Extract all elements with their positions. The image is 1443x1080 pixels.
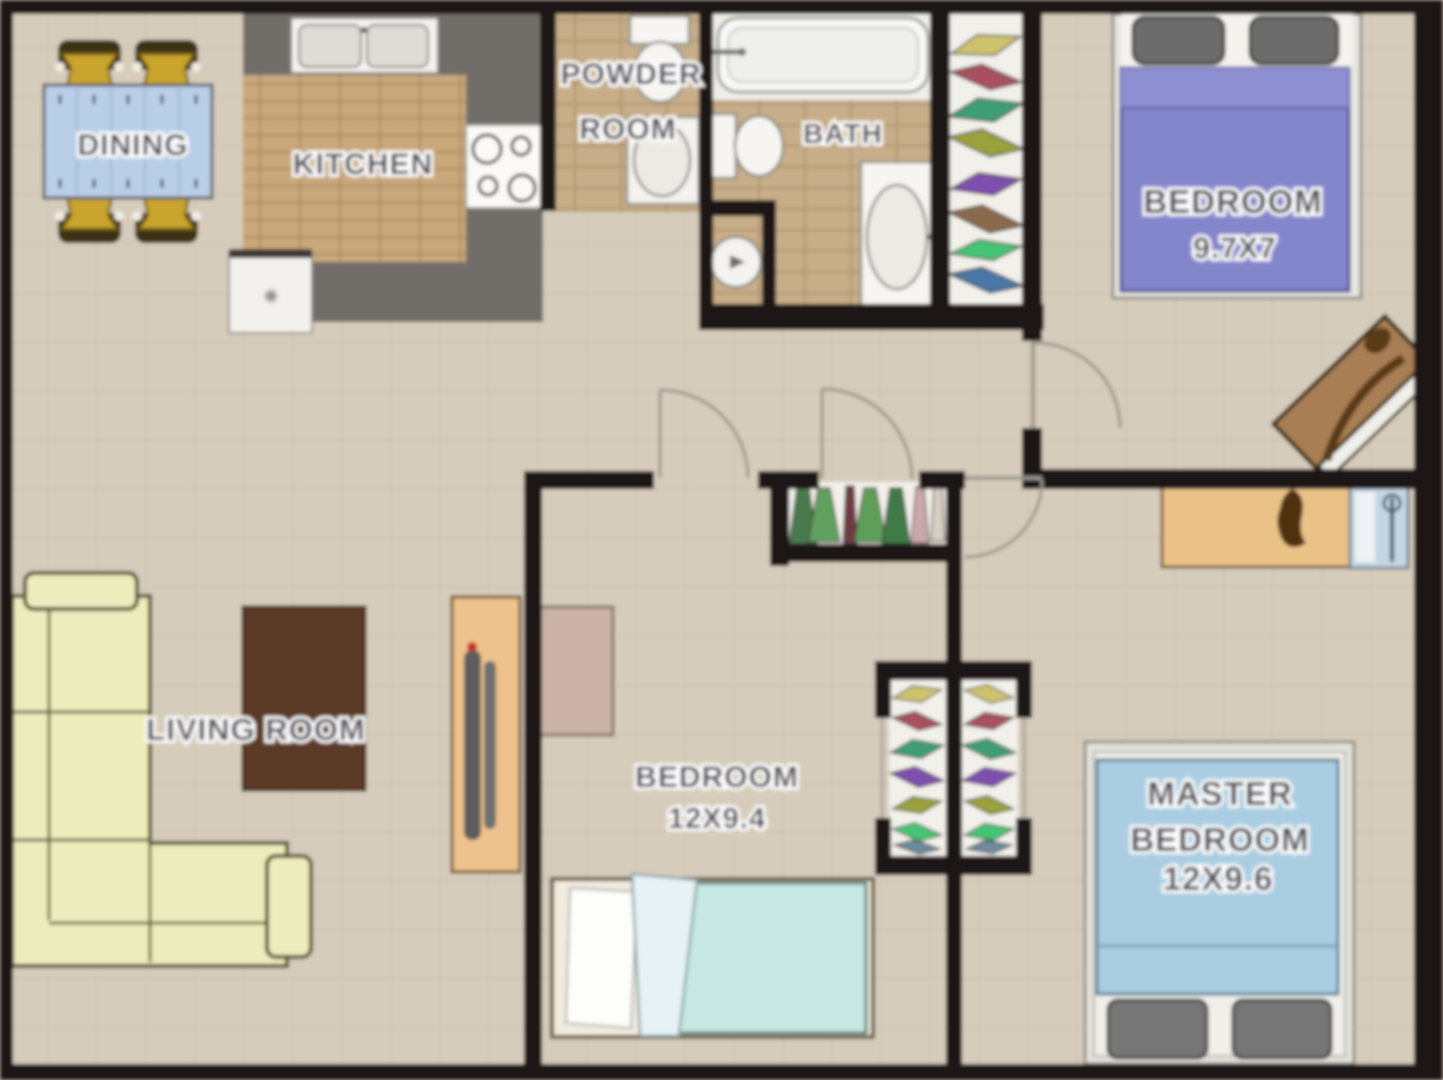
svg-text:MASTER: MASTER — [1147, 775, 1292, 812]
svg-text:12X9.4: 12X9.4 — [668, 803, 766, 835]
svg-text:BEDROOM: BEDROOM — [1130, 821, 1309, 858]
svg-text:DINING: DINING — [78, 129, 189, 162]
svg-text:ROOM: ROOM — [579, 113, 676, 146]
svg-text:LIVING ROOM: LIVING ROOM — [146, 712, 365, 747]
svg-text:BEDROOM: BEDROOM — [1143, 183, 1322, 220]
svg-text:12X9.6: 12X9.6 — [1163, 860, 1274, 897]
svg-text:BEDROOM: BEDROOM — [635, 761, 799, 794]
svg-text:KITCHEN: KITCHEN — [293, 148, 433, 181]
svg-text:POWDER: POWDER — [561, 58, 702, 91]
svg-text:BATH: BATH — [803, 118, 883, 149]
svg-text:9.7X7: 9.7X7 — [1193, 232, 1276, 265]
